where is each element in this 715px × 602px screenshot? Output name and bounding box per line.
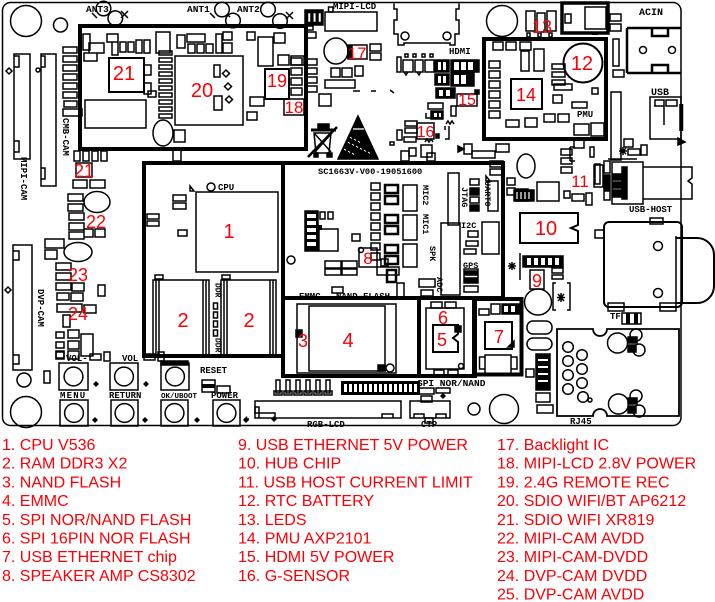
svg-text:4. EMMC: 4. EMMC xyxy=(2,493,69,510)
svg-text:17. Backlight IC: 17. Backlight IC xyxy=(497,437,609,454)
svg-text:18. MIPI-LCD 2.8V POWER: 18. MIPI-LCD 2.8V POWER xyxy=(497,456,696,473)
svg-text:CTP: CTP xyxy=(421,420,438,430)
svg-text:RGB-LCD: RGB-LCD xyxy=(307,420,345,430)
svg-text:20: 20 xyxy=(191,80,213,102)
svg-text:12: 12 xyxy=(571,53,593,75)
svg-text:7. USB ETHERNET chip: 7. USB ETHERNET chip xyxy=(2,549,177,566)
svg-text:9. USB ETHERNET 5V POWER: 9. USB ETHERNET 5V POWER xyxy=(238,437,468,454)
svg-text:I2C: I2C xyxy=(461,221,476,231)
svg-text:CMB-CAM: CMB-CAM xyxy=(60,118,70,156)
svg-text:JTAG: JTAG xyxy=(459,187,469,207)
svg-text:24: 24 xyxy=(68,304,88,324)
svg-text:VOL-: VOL- xyxy=(66,354,88,364)
svg-text:MIC2: MIC2 xyxy=(420,185,430,205)
svg-text:CPU: CPU xyxy=(218,183,234,193)
svg-text:DDR: DDR xyxy=(213,338,222,353)
svg-text:23: 23 xyxy=(68,265,88,285)
svg-text:OK/UBOOT: OK/UBOOT xyxy=(161,393,198,401)
svg-text:13. LEDS: 13. LEDS xyxy=(238,512,306,529)
svg-text:23. MIPI-CAM-DVDD: 23. MIPI-CAM-DVDD xyxy=(497,549,648,566)
svg-text:21: 21 xyxy=(74,161,94,181)
svg-text:10: 10 xyxy=(535,218,557,240)
svg-text:MIPI-CAM: MIPI-CAM xyxy=(18,157,28,200)
svg-text:NAND-FLASH: NAND-FLASH xyxy=(336,292,390,302)
svg-text:SC1663V-V00-19051600: SC1663V-V00-19051600 xyxy=(318,167,422,177)
svg-text:MENU: MENU xyxy=(60,391,86,401)
svg-text:USB-HOST: USB-HOST xyxy=(629,205,673,215)
svg-text:6. SPI 16PIN NOR FLASH: 6. SPI 16PIN NOR FLASH xyxy=(2,531,191,548)
svg-text:HDMI: HDMI xyxy=(449,47,471,57)
svg-text:POWER: POWER xyxy=(211,391,239,401)
svg-text:ANT2: ANT2 xyxy=(237,4,260,15)
svg-text:14: 14 xyxy=(516,85,536,105)
svg-text:18: 18 xyxy=(285,98,304,117)
svg-text:13: 13 xyxy=(532,17,552,37)
svg-text:19. 2.4G REMOTE REC: 19. 2.4G REMOTE REC xyxy=(497,474,670,491)
svg-text:RJ45: RJ45 xyxy=(570,417,592,427)
svg-text:5. SPI NOR/NAND FLASH: 5. SPI NOR/NAND FLASH xyxy=(2,512,191,529)
svg-text:2. RAM DDR3 X2: 2. RAM DDR3 X2 xyxy=(2,456,127,473)
svg-text:VOL: VOL xyxy=(122,354,138,364)
svg-text:ANT1: ANT1 xyxy=(187,4,210,15)
svg-text:16. G-SENSOR: 16. G-SENSOR xyxy=(238,568,350,585)
svg-text:1: 1 xyxy=(223,221,234,243)
svg-text:7: 7 xyxy=(494,327,504,347)
svg-text:1. CPU V536: 1. CPU V536 xyxy=(2,437,95,454)
svg-text:ACIN: ACIN xyxy=(639,8,663,19)
svg-text:16: 16 xyxy=(417,124,435,141)
svg-text:RESET: RESET xyxy=(200,366,228,376)
svg-text:24. DVP-CAM DVDD: 24. DVP-CAM DVDD xyxy=(497,568,647,585)
svg-text:17: 17 xyxy=(348,44,367,63)
svg-text:ADC: ADC xyxy=(434,277,444,292)
svg-text:22: 22 xyxy=(86,212,106,232)
svg-text:TF: TF xyxy=(610,312,621,322)
svg-text:DVP-CAM: DVP-CAM xyxy=(35,289,45,327)
svg-text:4: 4 xyxy=(342,330,353,352)
svg-text:EMMC: EMMC xyxy=(299,292,321,302)
svg-text:21. SDIO WIFI XR819: 21. SDIO WIFI XR819 xyxy=(497,512,654,529)
svg-text:21: 21 xyxy=(113,63,135,85)
svg-text:RETURN: RETURN xyxy=(109,391,141,401)
svg-text:6: 6 xyxy=(438,308,448,328)
svg-text:10. HUB CHIP: 10. HUB CHIP xyxy=(238,456,341,473)
svg-text:20. SDIO WIFI/BT AP6212: 20. SDIO WIFI/BT AP6212 xyxy=(497,493,686,510)
svg-text:SPI NOR/NAND: SPI NOR/NAND xyxy=(417,378,486,389)
svg-text:11: 11 xyxy=(571,172,589,191)
svg-text:PMU: PMU xyxy=(577,110,593,120)
svg-text:UART0: UART0 xyxy=(482,181,492,207)
svg-text:3. NAND FLASH: 3. NAND FLASH xyxy=(2,474,121,491)
svg-text:SPK: SPK xyxy=(427,246,437,262)
svg-text:MIPI-LCD: MIPI-LCD xyxy=(333,2,377,12)
svg-text:19: 19 xyxy=(267,71,287,91)
svg-text:GPS: GPS xyxy=(463,261,478,271)
svg-text:11. USB HOST CURRENT LIMIT: 11. USB HOST CURRENT LIMIT xyxy=(238,474,473,491)
svg-text:5: 5 xyxy=(437,330,447,350)
svg-text:12. RTC BATTERY: 12. RTC BATTERY xyxy=(238,493,374,510)
svg-text:15: 15 xyxy=(458,92,476,109)
svg-text:2: 2 xyxy=(243,310,254,332)
svg-text:2: 2 xyxy=(177,310,188,332)
svg-text:9: 9 xyxy=(532,271,542,291)
svg-text:USB: USB xyxy=(651,88,669,99)
svg-text:25. DVP-CAM AVDD: 25. DVP-CAM AVDD xyxy=(497,587,644,602)
svg-text:14. PMU AXP2101: 14. PMU AXP2101 xyxy=(238,531,372,548)
svg-text:15. HDMI 5V POWER: 15. HDMI 5V POWER xyxy=(238,549,394,566)
svg-text:22. MIPI-CAM AVDD: 22. MIPI-CAM AVDD xyxy=(497,531,644,548)
svg-text:8: 8 xyxy=(363,249,372,268)
svg-text:MIC1: MIC1 xyxy=(420,214,430,234)
svg-text:ANT3: ANT3 xyxy=(86,4,109,15)
svg-text:3: 3 xyxy=(298,331,308,351)
svg-text:DDR: DDR xyxy=(213,283,222,298)
svg-text:8. SPEAKER AMP CS8302: 8. SPEAKER AMP CS8302 xyxy=(2,568,196,585)
